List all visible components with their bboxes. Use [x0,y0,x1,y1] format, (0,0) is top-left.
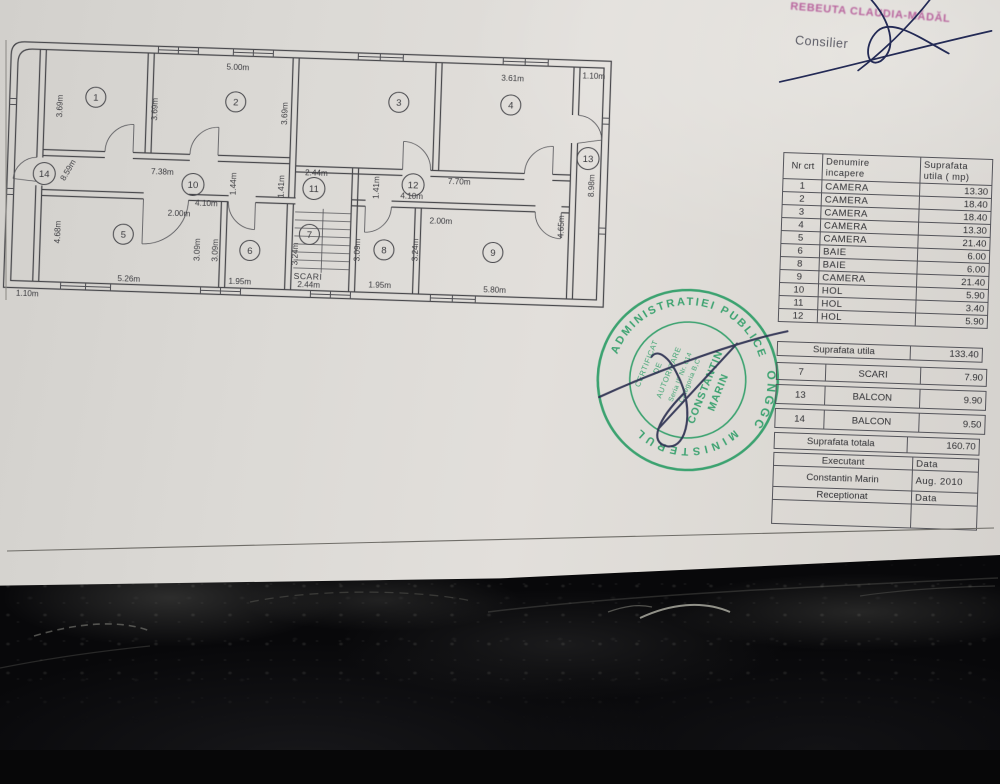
stamp-ring-top-text: ADMINISTRATIEI PUBLICE [609,293,771,360]
dimension-label: 4.65m [556,215,566,238]
cell-room-nr: 8 [780,257,819,271]
dimension-label: 1.10m [16,289,39,299]
cell-room-nr: 6 [780,244,819,258]
summary-utila-table: Suprafata utila133.40 [777,341,983,363]
dimension-label: 3.09m [192,238,202,261]
signoff-label [772,499,912,528]
cell-room-nr: 13 [776,384,826,405]
cell-room-area: 9.90 [919,389,986,410]
cell-room-name: SCARI [825,364,921,384]
cell-room-area: 5.90 [915,313,987,328]
room-number: 2 [233,97,239,108]
dimension-label: 3.24m [411,238,421,261]
summary-totala-label: Suprafata totala [774,432,907,452]
col-header-name: Denumireincapere [822,154,921,183]
dimension-label: 1.41m [372,176,382,199]
dimension-label: 3.24m [290,242,300,265]
room-number: 14 [39,169,51,180]
cell-room-name: BALCON [824,410,920,432]
printed-content: 5.00m3.61m1.10m3.69m3.69m3.69m8.59m7.38m… [0,0,999,783]
dimension-label: 1.95m [368,280,391,290]
dimension-label: 5.26m [117,274,140,284]
dimension-label: 4.68m [53,220,63,243]
col-header-nr: Nr crt [783,153,823,180]
signoff-value [910,504,977,530]
dimension-label: 7.70m [448,177,471,187]
dimension-label: 3.61m [501,74,524,84]
room-number: 8 [381,245,387,256]
dimension-label: 7.38m [151,167,174,177]
summary-totala-value: 160.70 [907,437,979,455]
signoff-value: Aug. 2010 [912,470,979,493]
dimension-label: 1.10m [582,71,605,81]
dimension-label: 1.44m [229,172,239,195]
room-number: 10 [187,180,198,191]
room-number: 13 [583,154,594,165]
summary-utila-value: 133.40 [910,346,982,362]
cell-room-nr: 5 [781,231,820,245]
room-number: 12 [408,180,419,191]
dimension-label: 2.44m [305,168,328,178]
room-number: 5 [120,230,126,241]
dimension-label: 2.00m [167,209,190,219]
cell-room-area: 9.50 [919,413,986,434]
dimension-label: 5.00m [226,63,249,73]
room-number: 11 [309,184,319,195]
cell-room-name: HOL [817,310,915,326]
plan-labels: 5.00m3.61m1.10m3.69m3.69m3.69m8.59m7.38m… [16,53,606,317]
room-number: 4 [508,100,514,111]
cell-room-nr: 9 [780,270,819,284]
dimension-label: 3.69m [55,94,65,117]
ink-signature [775,0,1000,122]
cell-room-nr: 14 [775,408,825,429]
round-certification-stamp: ADMINISTRATIEI PUBLICE MINISTERUL ONGGC … [585,277,792,484]
room-number: 6 [247,246,253,257]
dimension-label: 3.69m [150,98,160,121]
area-table: Nr crtDenumireincapereSuprafatautila ( m… [771,152,979,530]
dimension-label: 8.59m [59,158,78,182]
cell-room-nr: 4 [781,218,820,232]
cell-room-nr: 1 [783,179,822,193]
stairs-label: SCARI [293,271,322,282]
dimension-label: 4.10m [195,199,218,209]
dimension-label: 1.95m [228,277,251,287]
room-number: 9 [490,248,496,259]
cell-room-nr: 12 [778,308,817,322]
extra-area-table: 13BALCON9.90 [775,384,987,411]
floor-plan: 5.00m3.61m1.10m3.69m3.69m3.69m8.59m7.38m… [0,38,616,320]
extra-area-table: 14BALCON9.50 [774,408,986,435]
cell-room-nr: 3 [782,205,821,219]
signoff-table: ExecutantDataConstantin MarinAug. 2010Re… [771,452,979,531]
cell-room-nr: 11 [779,295,818,309]
dimension-label: 1.41m [277,175,287,198]
approval-signature-block: REBEUTA CLAUDIA-MĂDĂL Consilier [775,0,1000,122]
dimension-label: 8.98m [587,174,597,197]
col-header-area: Suprafatautila ( mp) [920,157,993,185]
room-number: 7 [307,230,313,241]
cell-room-name: BALCON [825,386,921,408]
dimension-label: 3.09m [353,238,363,261]
dimension-label: 3.09m [210,239,220,262]
extra-area-table: 7SCARI7.90 [776,362,987,387]
room-number: 1 [93,93,99,104]
summary-utila-label: Suprafata utila [777,341,910,359]
room-area-table: Nr crtDenumireincapereSuprafatautila ( m… [778,152,994,329]
dimension-label: 2.00m [429,216,452,226]
cell-room-nr: 2 [782,192,821,206]
cell-room-nr: 7 [776,362,826,381]
dimension-label: 5.80m [483,285,506,295]
room-number: 3 [396,98,402,109]
cell-room-area: 7.90 [920,367,987,386]
photo-of-floor-plan-document: { "colors":{ "paper":"#dcd9d5", "leather… [0,0,1000,750]
dimension-label: 3.69m [280,102,290,125]
cell-room-nr: 10 [779,283,818,297]
